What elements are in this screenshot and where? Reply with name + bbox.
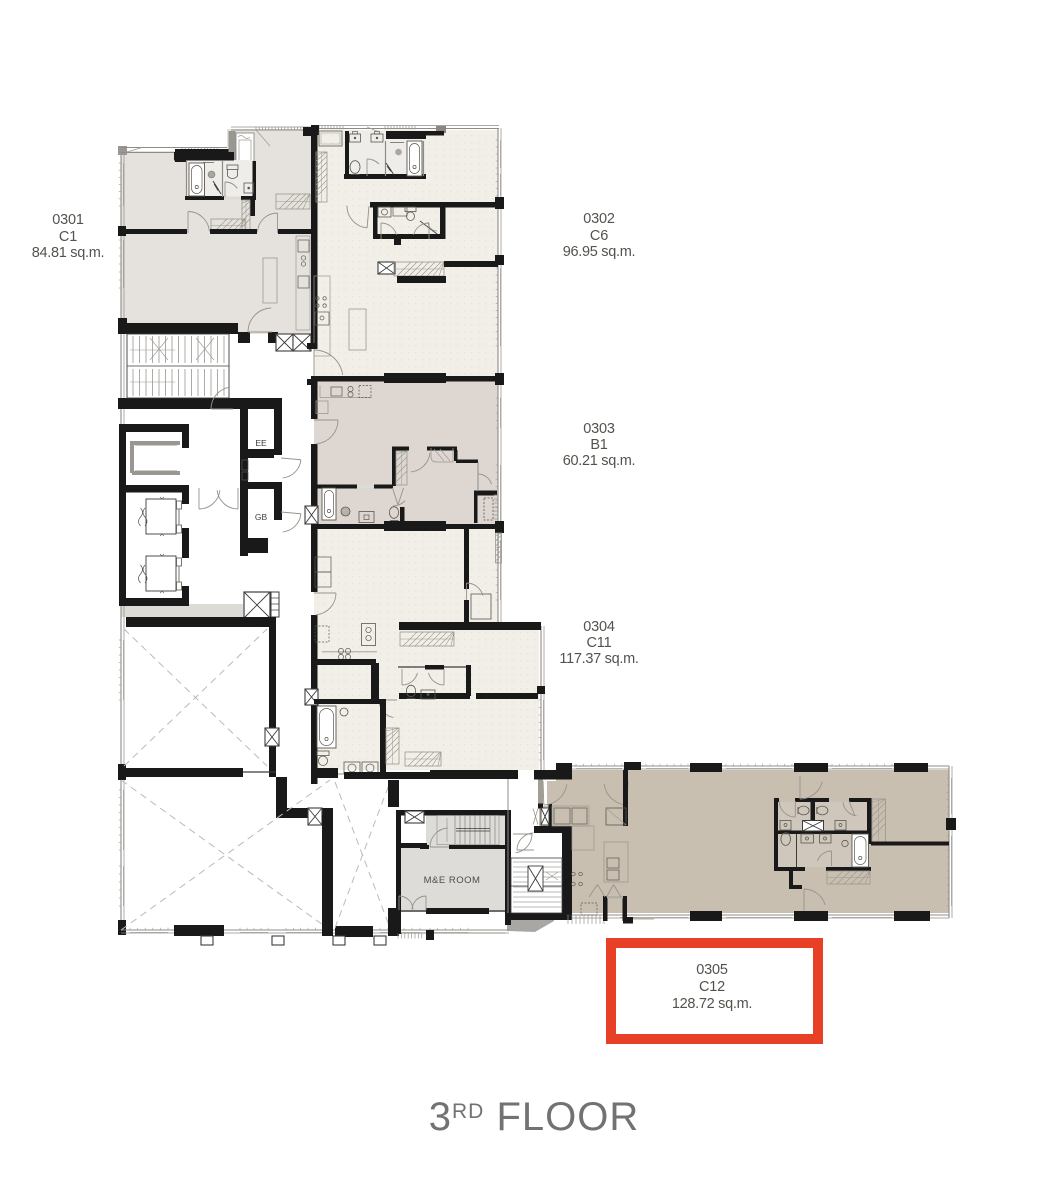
svg-text:0304: 0304	[583, 619, 615, 635]
svg-text:0305: 0305	[696, 962, 728, 978]
svg-text:M&E ROOM: M&E ROOM	[424, 875, 481, 886]
svg-text:0303: 0303	[583, 421, 615, 437]
svg-text:0301: 0301	[52, 212, 84, 228]
svg-text:B1: B1	[590, 437, 607, 453]
svg-text:C6: C6	[590, 228, 608, 244]
svg-text:C1: C1	[59, 229, 77, 245]
svg-text:C12: C12	[699, 979, 725, 995]
svg-text:GB: GB	[255, 512, 268, 522]
svg-text:EE: EE	[255, 438, 267, 448]
svg-text:84.81 sq.m.: 84.81 sq.m.	[32, 245, 104, 261]
svg-text:117.37 sq.m.: 117.37 sq.m.	[559, 651, 638, 667]
svg-text:0302: 0302	[583, 211, 615, 227]
svg-text:96.95 sq.m.: 96.95 sq.m.	[563, 244, 635, 260]
svg-text:60.21 sq.m.: 60.21 sq.m.	[563, 453, 635, 469]
svg-text:128.72 sq.m.: 128.72 sq.m.	[672, 996, 752, 1012]
svg-text:C11: C11	[587, 635, 612, 651]
